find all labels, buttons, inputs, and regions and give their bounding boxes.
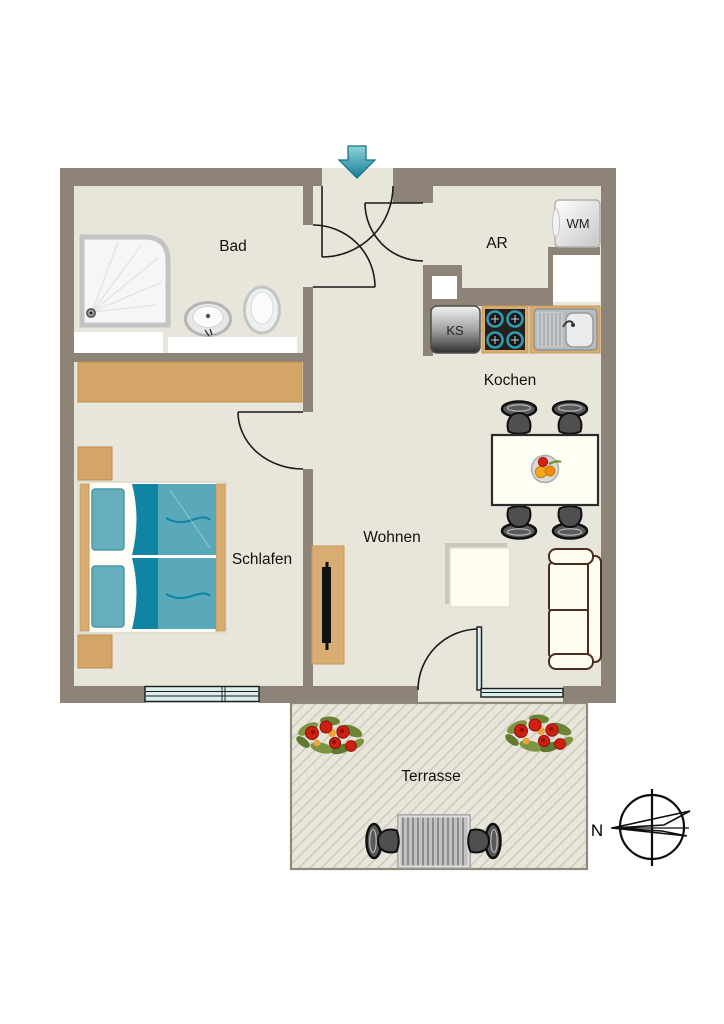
wm-label: WM [566, 216, 589, 231]
label-kochen: Kochen [484, 372, 537, 389]
compass-needle-icon [612, 828, 687, 836]
sofa [549, 549, 601, 669]
label-wohnen: Wohnen [363, 529, 420, 546]
bedroom-window [145, 687, 259, 702]
pillow-bottom [92, 566, 124, 627]
sofa-seat [549, 610, 590, 657]
bath-counter-right [168, 337, 297, 353]
sofa-seat [549, 563, 590, 611]
washing-machine: WM [553, 200, 601, 247]
double-bed [78, 482, 226, 633]
floor-plan-canvas: WM KS [0, 0, 724, 1024]
tv-sideboard [312, 546, 344, 664]
floor-plan-drawing: WM KS [0, 0, 724, 1024]
wm-door-icon [553, 209, 560, 237]
label-schlafen: Schlafen [232, 551, 292, 568]
fridge: KS [431, 306, 480, 353]
kitchen-sink [530, 306, 600, 353]
label-bad: Bad [219, 238, 247, 255]
shower [82, 237, 168, 325]
compass-north-label: N [591, 821, 603, 840]
sofa-backrest [588, 556, 601, 662]
compass-rose: N [591, 789, 690, 866]
label-ar: AR [486, 235, 508, 252]
bath-counter-left [74, 332, 163, 353]
footboard [216, 484, 225, 631]
fridge-label: KS [446, 323, 464, 338]
nightstand-top [78, 447, 112, 480]
stove [482, 306, 528, 353]
label-terrasse: Terrasse [401, 768, 460, 785]
bath-sink [186, 303, 231, 337]
nightstand-bottom [78, 635, 112, 668]
pillow-top [92, 489, 124, 550]
coffee-table [445, 543, 510, 607]
sofa-armrest [549, 549, 593, 564]
terrace-door-leaf [477, 627, 482, 690]
sink-basin [566, 313, 593, 347]
terrace-area [291, 703, 587, 869]
sofa-armrest [549, 654, 593, 669]
kitchen-counter: KS [431, 306, 600, 353]
terrace-table [398, 815, 470, 868]
headboard [80, 484, 89, 631]
toilet [245, 287, 280, 333]
wardrobe [78, 362, 302, 402]
living-room-window [481, 689, 563, 698]
